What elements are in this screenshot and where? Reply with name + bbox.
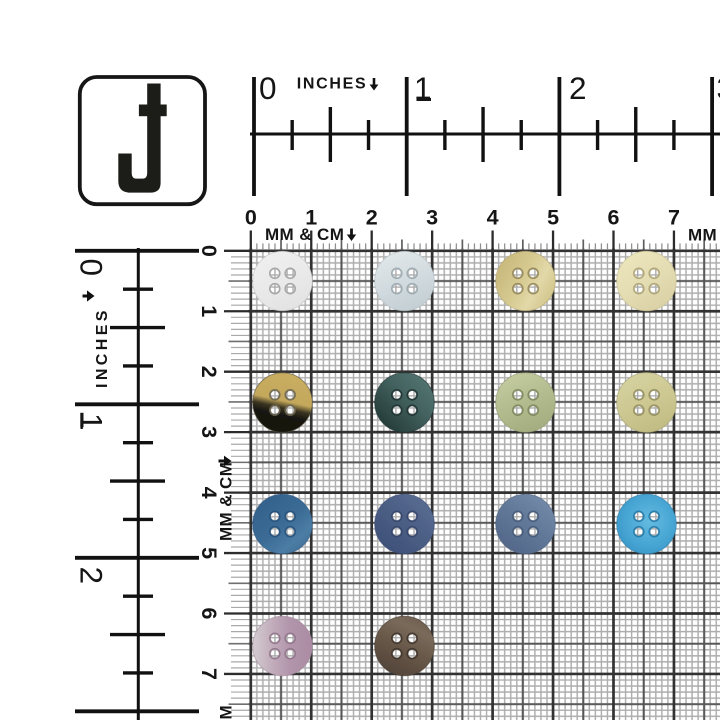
svg-text:0: 0 xyxy=(245,206,257,230)
svg-text:1: 1 xyxy=(197,305,221,317)
svg-text:1: 1 xyxy=(74,413,110,431)
svg-text:MM: MM xyxy=(217,705,236,720)
svg-text:MM: MM xyxy=(688,226,717,245)
svg-text:2: 2 xyxy=(74,567,110,585)
svg-text:4: 4 xyxy=(487,206,499,230)
svg-text:MM & CM: MM & CM xyxy=(217,462,236,541)
svg-text:INCHES: INCHES xyxy=(297,76,368,93)
svg-text:0: 0 xyxy=(74,259,110,277)
svg-text:2: 2 xyxy=(197,366,221,378)
svg-text:0: 0 xyxy=(197,245,221,257)
svg-text:6: 6 xyxy=(197,608,221,620)
svg-text:6: 6 xyxy=(608,206,620,230)
svg-text:7: 7 xyxy=(197,668,221,680)
svg-text:7: 7 xyxy=(668,206,680,230)
svg-text:5: 5 xyxy=(197,547,221,559)
svg-text:2: 2 xyxy=(366,206,378,230)
svg-text:5: 5 xyxy=(547,206,559,230)
svg-text:INCHES: INCHES xyxy=(94,307,111,388)
svg-text:3: 3 xyxy=(197,426,221,438)
svg-text:3: 3 xyxy=(717,70,720,106)
svg-text:MM & CM: MM & CM xyxy=(265,225,344,244)
svg-text:0: 0 xyxy=(259,70,277,106)
svg-text:2: 2 xyxy=(569,70,587,106)
svg-text:3: 3 xyxy=(426,206,438,230)
